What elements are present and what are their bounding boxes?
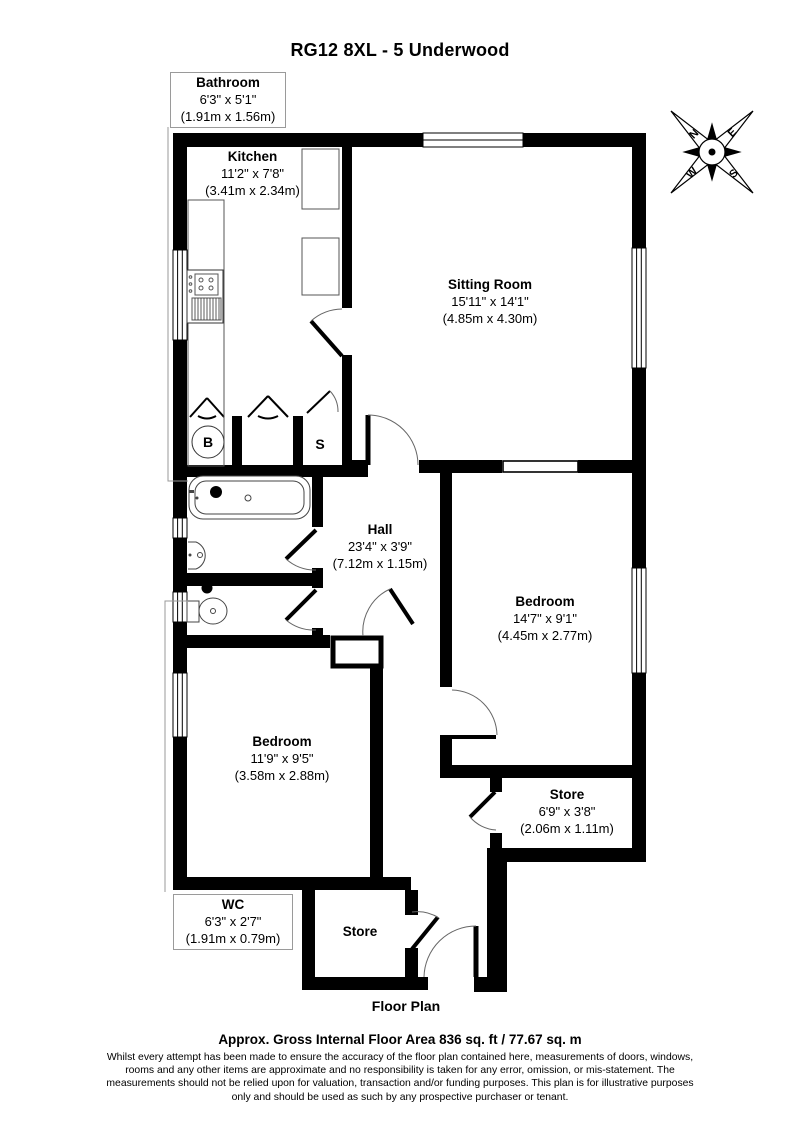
room-dims-metric: (3.58m x 2.88m) — [192, 767, 372, 784]
disclaimer-text: Whilst every attempt has been made to en… — [88, 1051, 712, 1104]
room-dims-metric: (4.85m x 4.30m) — [395, 310, 585, 327]
door-cupboard-middle — [248, 396, 288, 419]
store-bottom-label: Store — [312, 923, 408, 940]
toilet-icon — [187, 583, 227, 625]
room-dims-metric: (1.91m x 0.79m) — [174, 930, 292, 947]
floor-plan-caption: Floor Plan — [330, 998, 482, 1014]
room-dims-imperial: 15'11" x 14'1" — [395, 293, 585, 310]
bathroom-label: Bathroom 6'3" x 5'1" (1.91m x 1.56m) — [170, 72, 286, 128]
door-sitting-room — [368, 415, 418, 465]
sitting-room-label: Sitting Room 15'11" x 14'1" (4.85m x 4.3… — [395, 276, 585, 327]
storage-marker: S — [315, 436, 324, 452]
gross-internal-area: Approx. Gross Internal Floor Area 836 sq… — [0, 1032, 800, 1047]
floor-plan-page: RG12 8XL - 5 Underwood — [0, 0, 800, 1132]
room-dims-imperial: 11'2" x 7'8" — [175, 165, 330, 182]
compass-rose-icon: N E S W — [630, 70, 794, 234]
store-right-label: Store 6'9" x 3'8" (2.06m x 1.11m) — [498, 786, 636, 837]
room-name: Store — [498, 786, 636, 803]
room-name: Hall — [300, 521, 460, 538]
room-name: Bedroom — [192, 733, 372, 750]
window-sitting-room — [632, 248, 646, 368]
door-store-right — [470, 792, 496, 830]
door-cupboard-s — [307, 391, 338, 413]
bathroom-fixtures — [187, 476, 310, 624]
cooker-icon — [187, 270, 223, 323]
window-top — [423, 133, 523, 147]
door-store-bottom — [412, 912, 439, 949]
room-dims-imperial: 6'3" x 2'7" — [174, 913, 292, 930]
room-dims-metric: (7.12m x 1.15m) — [300, 555, 460, 572]
room-dims-metric: (2.06m x 1.11m) — [498, 820, 636, 837]
door-bedroom-right — [452, 690, 497, 737]
kitchen-label: Kitchen 11'2" x 7'8" (3.41m x 2.34m) — [175, 148, 330, 199]
bedroom-left-label: Bedroom 11'9" x 9'5" (3.58m x 2.88m) — [192, 733, 372, 784]
room-dims-imperial: 23'4" x 3'9" — [300, 538, 460, 555]
door-wc — [286, 590, 316, 630]
disclaimer-line: rooms and any other items are approximat… — [88, 1064, 712, 1077]
room-name: Kitchen — [175, 148, 330, 165]
window-bathroom — [173, 518, 187, 538]
basin-icon — [188, 542, 205, 569]
room-dims-metric: (1.91m x 1.56m) — [171, 108, 285, 125]
disclaimer-line: measurements should not be relied upon f… — [88, 1077, 712, 1090]
disclaimer-line: only and should be used as such by any p… — [88, 1091, 712, 1104]
room-dims-metric: (4.45m x 2.77m) — [450, 627, 640, 644]
disclaimer-line: Whilst every attempt has been made to en… — [88, 1051, 712, 1064]
room-name: Bedroom — [450, 593, 640, 610]
cupboard-markers: B S — [192, 426, 325, 458]
room-dims-imperial: 11'9" x 9'5" — [192, 750, 372, 767]
window-kitchen — [173, 250, 187, 340]
room-dims-imperial: 6'9" x 3'8" — [498, 803, 636, 820]
window-bedroom-left — [173, 673, 187, 737]
room-dims-metric: (3.41m x 2.34m) — [175, 182, 330, 199]
bathtub-icon — [189, 476, 310, 519]
wc-label: WC 6'3" x 2'7" (1.91m x 0.79m) — [173, 894, 293, 950]
boiler-marker: B — [203, 434, 213, 450]
window-wc — [173, 592, 187, 622]
door-cupboard-b — [190, 398, 224, 419]
room-name: Sitting Room — [395, 276, 585, 293]
room-dims-imperial: 6'3" x 5'1" — [171, 91, 285, 108]
room-name: WC — [174, 896, 292, 913]
door-bedroom-left — [363, 589, 413, 636]
kitchen-unit-bottom — [302, 238, 339, 295]
room-dims-imperial: 14'7" x 9'1" — [450, 610, 640, 627]
door-front-entrance — [424, 926, 476, 977]
bedroom-right-label: Bedroom 14'7" x 9'1" (4.45m x 2.77m) — [450, 593, 640, 644]
door-kitchen — [311, 309, 342, 356]
hall-label: Hall 23'4" x 3'9" (7.12m x 1.15m) — [300, 521, 460, 572]
room-name: Bathroom — [171, 74, 285, 91]
room-name: Store — [312, 923, 408, 940]
